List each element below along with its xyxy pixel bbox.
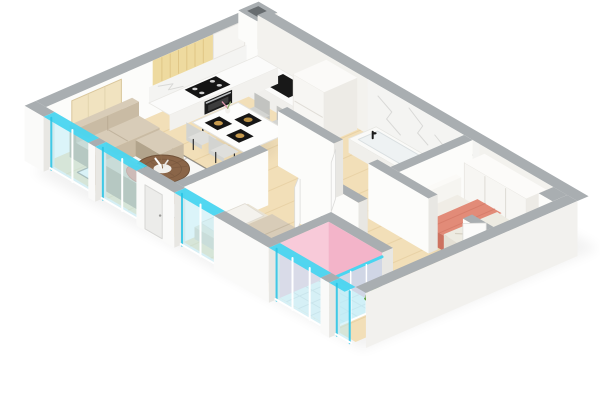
entrance-door	[145, 185, 162, 239]
floorplan-stage	[0, 0, 600, 400]
cooktop-burner	[217, 84, 222, 87]
plate	[235, 133, 244, 138]
entrance-door-knob	[159, 214, 161, 216]
plate	[244, 118, 253, 123]
bath-faucet-head	[372, 132, 376, 134]
wall-hall-right-end	[429, 195, 438, 254]
facade-post-face	[321, 278, 330, 338]
cooktop-burner	[192, 88, 197, 91]
cooktop-burner	[199, 92, 204, 95]
facade-post-face	[25, 106, 44, 172]
cooktop-burner	[210, 80, 215, 83]
floorplan-svg	[0, 0, 600, 400]
plate	[214, 121, 223, 126]
facade-post-face	[88, 143, 95, 202]
